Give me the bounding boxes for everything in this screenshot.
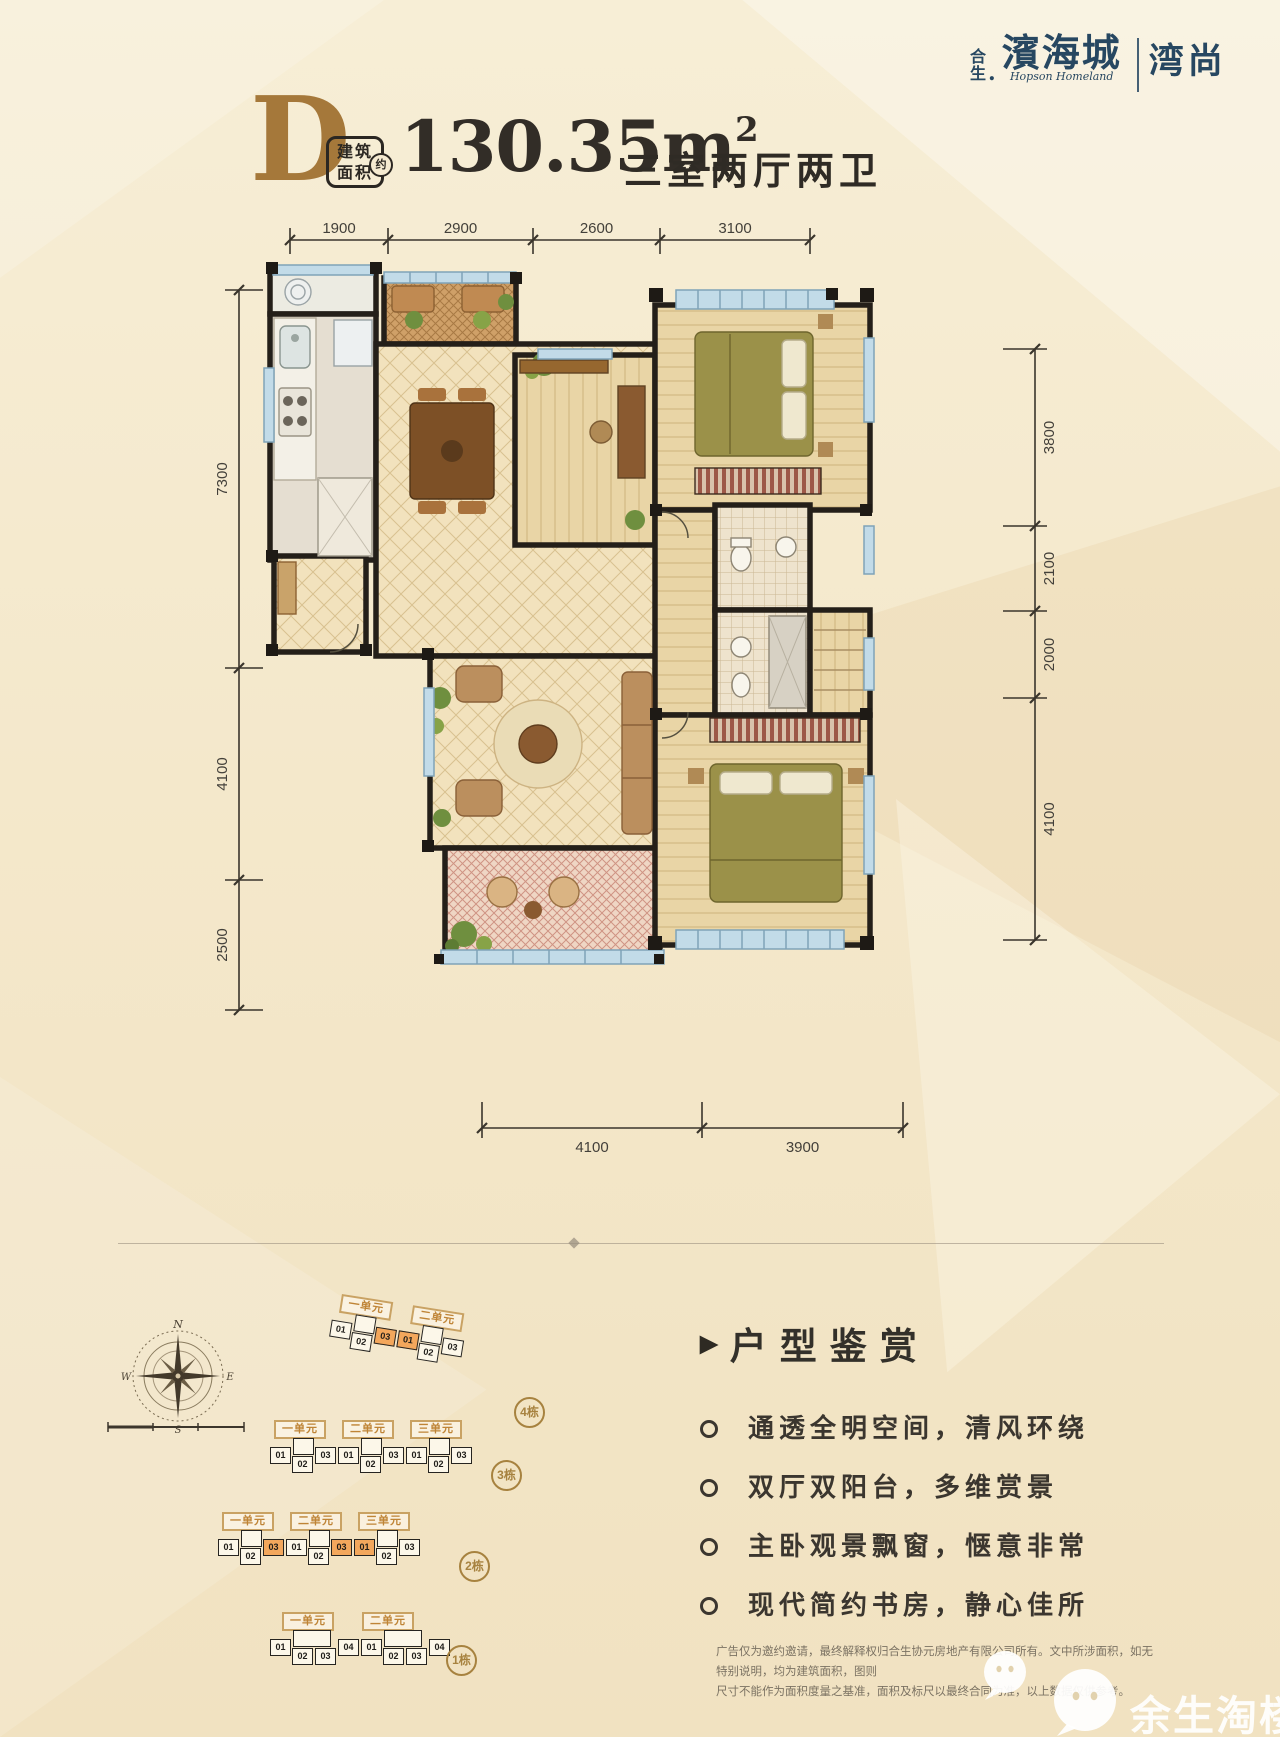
bullet-circle-icon [700,1597,718,1615]
desk [618,386,645,478]
balcony-table [524,901,542,919]
bullet-circle-icon [700,1479,718,1497]
unit-cell [384,1630,422,1647]
corridor [655,510,715,715]
unit-cell [241,1530,262,1547]
unit-cell: 02 [360,1456,381,1473]
brand-name: 濱海城 [1002,32,1122,74]
dimension-label: 7300 [214,462,231,495]
dimension-label: 2600 [580,220,613,237]
unit-label: 二单元 [342,1420,394,1439]
desk-chair [590,421,612,443]
bullet-circle-icon [700,1538,718,1556]
unit-label: 二单元 [410,1305,464,1332]
unit-cell: 03 [263,1539,284,1556]
site-building-1栋: 一单元二单元0102030401020304 [270,1612,452,1656]
site-building-2栋: 一单元二单元三单元010203010203010203 [218,1512,422,1556]
armchair [456,780,502,816]
brand-dot: . [988,60,996,86]
unit-cell: 02 [308,1548,329,1565]
rooms-summary: 三室两厅两卫 [624,140,882,195]
brand-prefix: 合 生 [970,48,986,82]
unit-label: 二单元 [290,1512,342,1531]
unit-cell: 01 [218,1539,239,1556]
unit-cell: 03 [331,1539,352,1556]
unit-label: 三单元 [358,1512,410,1531]
unit-cell: 03 [315,1447,336,1464]
unit-cell: 01 [286,1539,307,1556]
unit-cell [309,1530,330,1547]
unit-cell: 01 [329,1320,352,1340]
unit-cell: 03 [399,1539,420,1556]
unit-cell: 01 [338,1447,359,1464]
unit-cell [353,1314,376,1334]
feature-item: 双厅双阳台，多维赏景 [700,1469,1180,1506]
unit-cell: 02 [349,1332,372,1352]
section-divider [118,1243,1164,1244]
brand-prefix-top: 合 [970,48,986,65]
feature-item: 现代简约书房，静心佳所 [700,1587,1180,1624]
wardrobe-master [710,718,860,742]
features-heading: ▶ 户型鉴赏 [700,1316,1180,1370]
building-number-badge: 4栋 [514,1397,545,1428]
bay-window-2 [676,290,834,309]
armchair [456,666,502,702]
unit-cell: 03 [451,1447,472,1464]
washer [285,279,311,305]
unit-cell [293,1438,314,1455]
unit-cell: 03 [441,1337,464,1357]
unit-cell: 04 [338,1639,359,1656]
dimension-label: 4100 [1041,802,1058,835]
building-number-badge: 2栋 [459,1551,490,1582]
dimension-label: 2100 [1041,552,1058,585]
unit-cell: 02 [383,1648,404,1665]
unit-label: 一单元 [339,1294,393,1321]
divider-diamond-icon [568,1237,579,1248]
balcony-railing [441,950,664,964]
unit-cell: 01 [354,1539,375,1556]
unit-cell: 01 [406,1447,427,1464]
feature-item: 通透全明空间，清风环绕 [700,1410,1180,1447]
feature-item: 主卧观景飘窗，惬意非常 [700,1528,1180,1565]
unit-cell [293,1630,331,1647]
compass-w: W [121,1372,132,1383]
bullet-circle-icon [700,1420,718,1438]
floor-plan: 1900290026003100730041002500380021002000… [170,220,1080,1180]
brand-prefix-bottom: 生 [970,65,986,82]
feature-list: 通透全明空间，清风环绕双厅双阳台，多维赏景主卧观景飘窗，惬意非常现代简约书房，静… [700,1410,1180,1624]
compass-e: E [225,1372,234,1383]
building-number-badge: 3栋 [491,1460,522,1491]
bay-window-master [676,930,844,949]
balcony-chair [549,877,579,907]
dimension-label: 2000 [1041,638,1058,671]
brand-logo: 合 生 . 濱海城 Hopson Homeland 湾尚 [970,32,1227,92]
unit-cell: 02 [292,1648,313,1665]
site-building-4栋: 一单元二单元010203010203 [329,1293,470,1358]
toilet-2 [732,673,750,697]
balcony-chair [487,877,517,907]
feature-text: 现代简约书房，静心佳所 [748,1587,1089,1624]
brand-series: 湾尚 [1149,32,1227,92]
dimension-label: 4100 [214,757,231,790]
unit-cell: 03 [406,1648,427,1665]
brand-name-block: 濱海城 Hopson Homeland [1002,32,1122,83]
unit-label: 一单元 [222,1512,274,1531]
dimension-label: 2900 [444,220,477,237]
bathroom-1 [715,505,810,610]
sink-1 [776,537,796,557]
unit-cell [420,1325,443,1345]
dimension-label: 3800 [1041,421,1058,454]
brand-name-en: Hopson Homeland [1002,71,1122,83]
fridge [334,320,372,366]
coffee-table [519,725,557,763]
compass-icon: N E S W [118,1316,238,1436]
unit-cell: 02 [417,1343,440,1363]
dimension-label: 4100 [575,1139,608,1156]
unit-cell: 01 [270,1639,291,1656]
unit-label: 一单元 [282,1612,334,1631]
scale-bar [106,1420,246,1434]
poster-page: 合 生 . 濱海城 Hopson Homeland 湾尚 D 建筑 面积 约 1… [0,0,1280,1737]
unit-cell: 02 [292,1456,313,1473]
unit-cell: 03 [315,1648,336,1665]
stove [279,388,311,436]
unit-cell: 01 [396,1330,419,1350]
unit-cell: 01 [270,1447,291,1464]
sofa [622,672,652,834]
unit-cell [377,1530,398,1547]
triangle-marker-icon: ▶ [700,1330,718,1357]
closet [810,610,870,715]
feature-text: 通透全明空间，清风环绕 [748,1410,1089,1447]
features-heading-text: 户型鉴赏 [730,1316,930,1370]
approx-circle: 约 [369,153,393,177]
dimension-label: 2500 [214,928,231,961]
dimension-label: 3900 [786,1139,819,1156]
dimension-label: 1900 [322,220,355,237]
feature-text: 双厅双阳台，多维赏景 [748,1469,1058,1506]
chat-bubbles-watermark-icon [975,1646,1135,1737]
unit-label: 二单元 [362,1612,414,1631]
kitchen-sink [280,326,310,368]
dimension-label: 3100 [718,220,751,237]
unit-cell: 01 [361,1639,382,1656]
unit-cell [429,1438,450,1455]
unit-cell: 02 [428,1456,449,1473]
logo-divider [1137,38,1139,92]
watermark-text: 余生淘楼 [1130,1682,1280,1737]
building-number-badge: 1栋 [446,1645,477,1676]
unit-cell: 02 [376,1548,397,1565]
shoe-cabinet [278,562,296,614]
feature-text: 主卧观景飘窗，惬意非常 [748,1528,1089,1565]
compass-s: S [175,1425,182,1436]
unit-cell [361,1438,382,1455]
wardrobe-2 [695,468,821,494]
unit-label: 一单元 [274,1420,326,1439]
compass-n: N [172,1318,183,1331]
toilet-1 [731,545,751,571]
unit-label: 三单元 [410,1420,462,1439]
area-badge: 建筑 面积 约 [326,136,384,188]
unit-cell: 04 [429,1639,450,1656]
site-building-3栋: 一单元二单元三单元010203010203010203 [270,1420,474,1464]
sink-2 [731,637,751,657]
bookshelf [520,360,608,373]
features-section: ▶ 户型鉴赏 通透全明空间，清风环绕双厅双阳台，多维赏景主卧观景飘窗，惬意非常现… [700,1316,1180,1646]
unit-cell: 03 [383,1447,404,1464]
unit-cell: 02 [240,1548,261,1565]
unit-cell: 03 [374,1327,397,1347]
